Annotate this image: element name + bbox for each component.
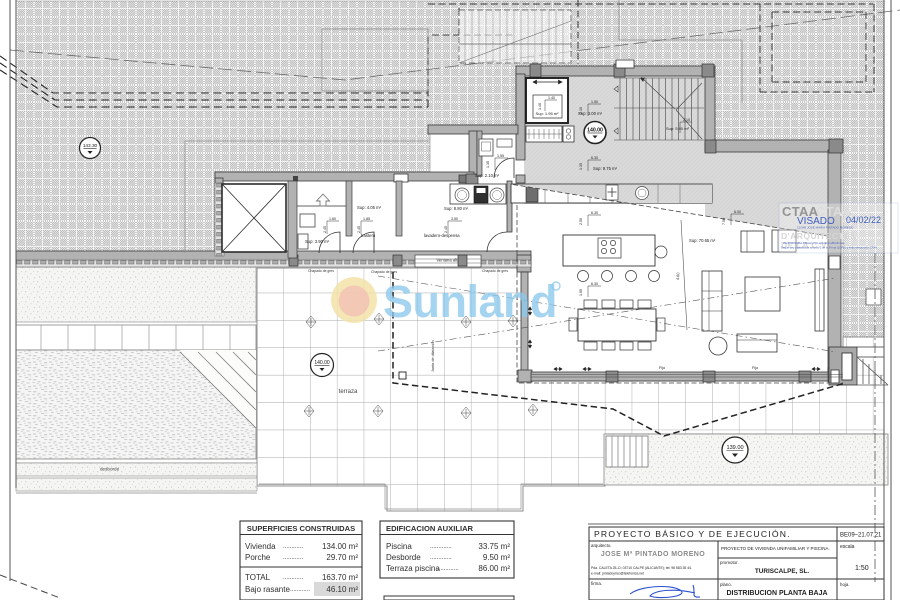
svg-text:Ventana alta: Ventana alta bbox=[436, 258, 460, 263]
svg-text:140.00: 140.00 bbox=[587, 128, 603, 134]
svg-text:Sup: 3.90 m²: Sup: 3.90 m² bbox=[305, 239, 330, 244]
svg-text:.............: ............. bbox=[437, 566, 459, 572]
svg-text:6.30: 6.30 bbox=[591, 156, 598, 160]
svg-text:6.30: 6.30 bbox=[591, 211, 598, 215]
svg-text:Sup: 70.65 m²: Sup: 70.65 m² bbox=[689, 238, 716, 243]
svg-text:plano.: plano. bbox=[720, 582, 732, 587]
svg-text:Sup: 9.75 m²: Sup: 9.75 m² bbox=[593, 166, 618, 171]
svg-text:1.35: 1.35 bbox=[579, 163, 583, 170]
svg-text:............: ............ bbox=[283, 544, 303, 550]
svg-text:1.50: 1.50 bbox=[591, 100, 598, 104]
svg-text:Sup: 1.95 m²: Sup: 1.95 m² bbox=[536, 111, 560, 116]
svg-text:hoja.: hoja. bbox=[840, 582, 850, 587]
svg-text:86.00 m²: 86.00 m² bbox=[478, 564, 510, 573]
svg-text:2.50: 2.50 bbox=[579, 218, 583, 225]
svg-text:9.50 m²: 9.50 m² bbox=[483, 553, 510, 562]
svg-text:Bajo rasante: Bajo rasante bbox=[245, 585, 290, 594]
svg-text:Terraza piscina: Terraza piscina bbox=[386, 564, 440, 573]
svg-text:DISTRIBUCION PLANTA BAJA: DISTRIBUCION PLANTA BAJA bbox=[726, 590, 827, 597]
svg-text:1.85: 1.85 bbox=[363, 217, 370, 221]
svg-text:............: ............ bbox=[290, 587, 310, 593]
svg-text:3.50: 3.50 bbox=[451, 217, 458, 221]
svg-text:Sunland: Sunland bbox=[383, 276, 557, 327]
svg-text:............: ............ bbox=[283, 555, 303, 561]
svg-text:Sup: 4.05 m²: Sup: 4.05 m² bbox=[357, 205, 382, 210]
svg-text:6.00: 6.00 bbox=[734, 210, 741, 214]
svg-text:2021/04691/BA P.Basico Q: 2021/04691/BA P.Basico Q.Liquidacion/BA/… bbox=[783, 241, 845, 245]
svg-text:terraza: terraza bbox=[339, 389, 358, 395]
svg-text:6.30: 6.30 bbox=[591, 282, 598, 286]
svg-text:Desborde: Desborde bbox=[386, 553, 421, 562]
svg-text:1.55: 1.55 bbox=[497, 154, 504, 158]
svg-text:12/345 JOSE MARIA PINTADO MOR: 12/345 JOSE MARIA PINTADO MORENO bbox=[797, 226, 854, 230]
svg-text:134.00 m²: 134.00 m² bbox=[322, 542, 358, 551]
svg-text:1.40: 1.40 bbox=[548, 96, 555, 100]
svg-text:Segun Ley digitalizada articul: Segun Ley digitalizada articulo 2 de la … bbox=[781, 246, 877, 250]
svg-text:Pda. CALETA 25–D; 03710 CALPE: Pda. CALETA 25–D; 03710 CALPE (ALICANTE)… bbox=[591, 566, 692, 570]
svg-text:140.00: 140.00 bbox=[314, 360, 330, 366]
svg-text:Vivienda: Vivienda bbox=[245, 542, 276, 551]
svg-text:1.40: 1.40 bbox=[538, 103, 542, 110]
svg-text:EDIFICACION AUXILIAR: EDIFICACION AUXILIAR bbox=[386, 524, 474, 533]
svg-text:e-mail: pintadoyrico@telefonic: e-mail: pintadoyrico@telefonica.net bbox=[591, 572, 644, 576]
svg-text:2.10: 2.10 bbox=[579, 107, 583, 114]
svg-text:escala: escala bbox=[840, 544, 855, 550]
svg-text:PROYECTO DE VIVIENDA UNIFAM: PROYECTO DE VIVIENDA UNIFAMILIAR Y PISCI… bbox=[721, 546, 830, 551]
svg-text:Piscina: Piscina bbox=[386, 542, 412, 551]
svg-text:lavadero-despensa: lavadero-despensa bbox=[424, 233, 460, 238]
svg-text:04/02/22: 04/02/22 bbox=[846, 215, 881, 225]
svg-text:1.35: 1.35 bbox=[486, 161, 490, 168]
svg-text:desborde: desborde bbox=[100, 467, 120, 472]
svg-text:4.60: 4.60 bbox=[676, 272, 680, 280]
svg-text:143.30: 143.30 bbox=[83, 143, 98, 148]
svg-text:.............: ............. bbox=[430, 555, 452, 561]
svg-text:BE09–21.07.21: BE09–21.07.21 bbox=[840, 533, 882, 539]
svg-text:Sup: 2.10 m²: Sup: 2.10 m² bbox=[475, 173, 500, 178]
svg-text:163.70 m²: 163.70 m² bbox=[322, 573, 358, 582]
svg-text:promotor.: promotor. bbox=[720, 560, 739, 565]
svg-text:1.50: 1.50 bbox=[579, 289, 583, 296]
svg-text:TURISCALPE, SL.: TURISCALPE, SL. bbox=[755, 568, 810, 575]
svg-text:Chapado de gres: Chapado de gres bbox=[482, 269, 508, 273]
svg-text:2.10: 2.10 bbox=[683, 118, 690, 122]
svg-text:JOSE Mª PINTADO MORENO: JOSE Mª PINTADO MORENO bbox=[601, 551, 705, 558]
svg-text:firma.: firma. bbox=[591, 581, 602, 586]
svg-text:Porche: Porche bbox=[245, 553, 271, 562]
svg-text:.............: ............. bbox=[430, 544, 452, 550]
svg-text:TOTAL: TOTAL bbox=[245, 573, 271, 582]
svg-text:139.00: 139.00 bbox=[726, 445, 743, 451]
svg-text:33.75 m²: 33.75 m² bbox=[478, 542, 510, 551]
svg-text:46.10 m²: 46.10 m² bbox=[326, 585, 358, 594]
svg-text:arquitecto.: arquitecto. bbox=[591, 543, 612, 548]
svg-text:1:50: 1:50 bbox=[855, 565, 869, 572]
svg-text:29.70 m²: 29.70 m² bbox=[326, 553, 358, 562]
svg-text:2.45: 2.45 bbox=[357, 226, 361, 233]
svg-text:trastero: trastero bbox=[361, 233, 376, 238]
svg-text:Sup: 8.80 m²: Sup: 8.80 m² bbox=[444, 206, 469, 211]
svg-text:2.45: 2.45 bbox=[444, 226, 448, 233]
svg-text:2.45: 2.45 bbox=[323, 226, 327, 233]
svg-text:PROYECTO BÁSICO Y DE EJECU: PROYECTO BÁSICO Y DE EJECUCIÓN. bbox=[594, 529, 791, 539]
svg-text:Fijo: Fijo bbox=[659, 366, 665, 370]
svg-text:Chapado de gres: Chapado de gres bbox=[308, 269, 334, 273]
svg-text:Sup: 5.90 m²: Sup: 5.90 m² bbox=[666, 126, 690, 131]
svg-text:Junta de dilatación: Junta de dilatación bbox=[431, 340, 435, 372]
svg-text:SUPERFICIES CONSTRUIDAS: SUPERFICIES CONSTRUIDAS bbox=[247, 524, 355, 533]
svg-text:1.60: 1.60 bbox=[329, 217, 336, 221]
svg-text:............: ............ bbox=[283, 575, 303, 581]
svg-text:Fijo: Fijo bbox=[752, 366, 758, 370]
